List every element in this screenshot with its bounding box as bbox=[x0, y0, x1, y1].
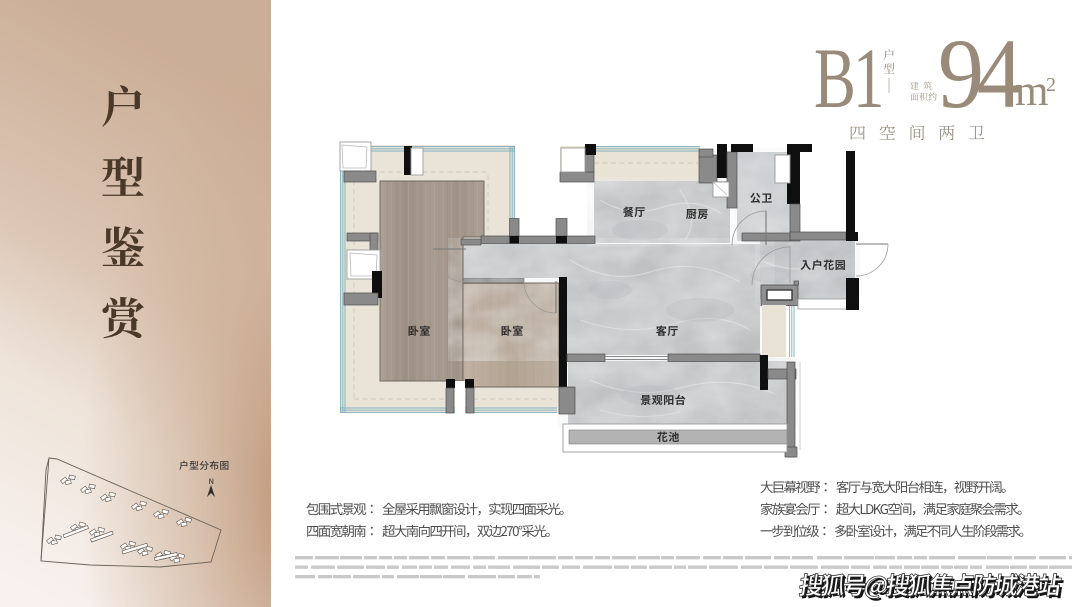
svg-text:m: m bbox=[1015, 68, 1048, 115]
svg-text:2: 2 bbox=[1046, 74, 1056, 96]
svg-text:B1: B1 bbox=[814, 32, 881, 127]
svg-text:94: 94 bbox=[938, 17, 1022, 128]
